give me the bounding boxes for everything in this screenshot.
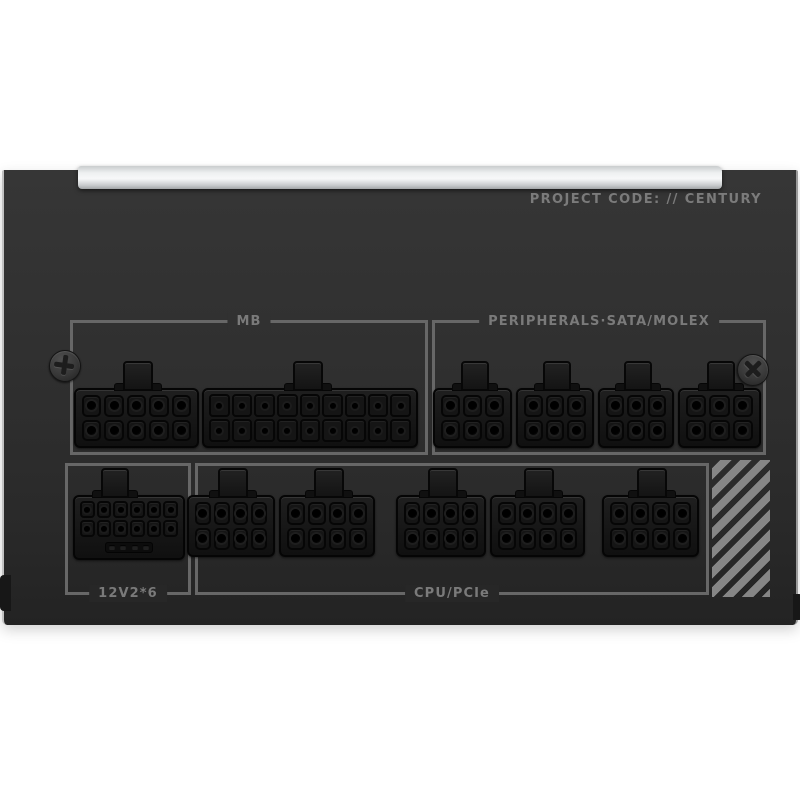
pin-socket bbox=[277, 394, 298, 417]
pin-grid bbox=[604, 497, 697, 555]
pin-hole bbox=[550, 401, 559, 410]
pin-hole bbox=[154, 426, 163, 435]
pin-hole bbox=[653, 401, 662, 410]
pin-socket bbox=[539, 502, 557, 525]
pin-socket bbox=[390, 394, 411, 417]
pin-hole bbox=[291, 509, 300, 518]
pin-hole bbox=[529, 426, 538, 435]
pin-socket bbox=[251, 502, 267, 525]
pin-hole bbox=[657, 509, 666, 518]
pin-hole bbox=[375, 428, 381, 434]
pin-grid bbox=[518, 390, 592, 446]
pin-socket bbox=[172, 420, 191, 442]
pin-socket bbox=[423, 528, 439, 551]
left-edge-clip bbox=[0, 575, 11, 611]
pin-hole bbox=[134, 526, 140, 532]
pin-socket bbox=[345, 394, 366, 417]
pin-socket bbox=[97, 520, 112, 537]
connector-latch-tab bbox=[218, 468, 248, 498]
connector-latch-tab bbox=[101, 468, 129, 498]
pin-hole bbox=[132, 426, 141, 435]
pin-hole bbox=[550, 426, 559, 435]
connector-latch-tab bbox=[293, 361, 323, 391]
pin-socket bbox=[686, 420, 706, 442]
connector-latch-tab bbox=[123, 361, 153, 391]
pin-hole bbox=[284, 428, 290, 434]
pin-socket bbox=[546, 395, 565, 417]
pin-hole bbox=[615, 509, 624, 518]
pin-socket bbox=[251, 528, 267, 551]
pin-hole bbox=[216, 428, 222, 434]
pin-socket bbox=[567, 420, 586, 442]
pin-socket bbox=[463, 395, 482, 417]
pin-hole bbox=[611, 426, 620, 435]
pin-socket bbox=[610, 502, 628, 525]
pin-socket bbox=[254, 394, 275, 417]
right-edge-clip bbox=[793, 594, 800, 620]
pin-socket bbox=[498, 502, 516, 525]
pin-socket bbox=[631, 502, 649, 525]
pin-hole bbox=[134, 507, 140, 513]
pin-socket bbox=[209, 394, 230, 417]
pin-hole bbox=[333, 534, 342, 543]
pin-socket bbox=[441, 420, 460, 442]
pin-hole bbox=[611, 401, 620, 410]
pin-hole bbox=[151, 526, 157, 532]
pin-socket bbox=[172, 395, 191, 417]
pin-hole bbox=[678, 509, 687, 518]
connector-layer bbox=[4, 170, 796, 625]
pin-socket bbox=[524, 420, 543, 442]
pin-grid bbox=[76, 390, 197, 446]
pin-socket bbox=[233, 502, 249, 525]
pin-hole bbox=[236, 534, 245, 543]
pin-socket bbox=[277, 419, 298, 442]
pin-socket bbox=[519, 528, 537, 551]
pin-socket bbox=[648, 420, 666, 442]
pin-socket bbox=[627, 420, 645, 442]
pin-hole bbox=[490, 426, 499, 435]
pin-grid bbox=[204, 390, 416, 446]
pin-hole bbox=[154, 401, 163, 410]
psu-modular-panel: PROJECT CODE: // CENTURY MB PERIPHERALS·… bbox=[2, 170, 798, 625]
pin-hole bbox=[84, 526, 90, 532]
pin-hole bbox=[446, 426, 455, 435]
pin-socket bbox=[214, 502, 230, 525]
pin-hole bbox=[330, 403, 336, 409]
pin-socket bbox=[214, 528, 230, 551]
pin-socket bbox=[485, 395, 504, 417]
pin-grid bbox=[75, 497, 183, 541]
pin-socket bbox=[546, 420, 565, 442]
pin-hole bbox=[239, 428, 245, 434]
pin-socket bbox=[567, 395, 586, 417]
pin-socket bbox=[733, 420, 753, 442]
pin-hole bbox=[255, 534, 264, 543]
pin-hole bbox=[330, 428, 336, 434]
pin-socket bbox=[287, 528, 305, 551]
connector-peri-2-6pin bbox=[516, 388, 594, 448]
pin-hole bbox=[151, 507, 157, 513]
pin-socket bbox=[80, 520, 95, 537]
pin-socket bbox=[147, 520, 162, 537]
pin-hole bbox=[490, 401, 499, 410]
pin-grid bbox=[680, 390, 759, 446]
pin-hole bbox=[523, 509, 532, 518]
pin-hole bbox=[239, 403, 245, 409]
connector-cpu-4-8pin bbox=[490, 495, 585, 557]
pin-hole bbox=[636, 534, 645, 543]
pin-socket bbox=[423, 502, 439, 525]
pin-hole bbox=[84, 507, 90, 513]
pin-hole bbox=[110, 401, 119, 410]
pin-socket bbox=[195, 528, 211, 551]
connector-cpu-2-8pin bbox=[279, 495, 375, 557]
pin-hole bbox=[312, 534, 321, 543]
connector-peri-4-6pin bbox=[678, 388, 761, 448]
pin-socket bbox=[104, 420, 123, 442]
pin-hole bbox=[564, 509, 573, 518]
pin-hole bbox=[217, 534, 226, 543]
connector-latch-tab bbox=[428, 468, 458, 498]
pin-socket bbox=[560, 502, 578, 525]
pin-hole bbox=[333, 509, 342, 518]
pin-hole bbox=[198, 534, 207, 543]
pin-grid bbox=[492, 497, 583, 555]
pin-socket bbox=[539, 528, 557, 551]
pin-socket bbox=[368, 419, 389, 442]
connector-v12-12pin bbox=[73, 495, 185, 560]
pin-hole bbox=[307, 428, 313, 434]
pin-socket bbox=[97, 501, 112, 518]
pin-socket bbox=[104, 395, 123, 417]
pin-hole bbox=[262, 403, 268, 409]
pin-socket bbox=[209, 419, 230, 442]
pin-socket bbox=[127, 420, 146, 442]
pin-socket bbox=[82, 395, 101, 417]
pin-socket bbox=[113, 501, 128, 518]
pin-socket bbox=[149, 395, 168, 417]
pin-hole bbox=[408, 534, 417, 543]
pin-hole bbox=[284, 403, 290, 409]
pin-hole bbox=[408, 509, 417, 518]
pin-hole bbox=[427, 534, 436, 543]
pin-socket bbox=[308, 528, 326, 551]
pin-socket bbox=[733, 395, 753, 417]
sense-pin bbox=[109, 545, 115, 550]
pin-hole bbox=[236, 509, 245, 518]
pin-hole bbox=[529, 401, 538, 410]
pin-hole bbox=[657, 534, 666, 543]
pin-hole bbox=[636, 509, 645, 518]
pin-hole bbox=[307, 403, 313, 409]
connector-latch-tab bbox=[461, 361, 489, 391]
pin-socket bbox=[443, 528, 459, 551]
pin-hole bbox=[110, 426, 119, 435]
pin-hole bbox=[446, 509, 455, 518]
pin-socket bbox=[462, 528, 478, 551]
connector-latch-tab bbox=[624, 361, 652, 391]
pin-hole bbox=[168, 526, 174, 532]
pin-socket bbox=[329, 502, 347, 525]
pin-socket bbox=[233, 528, 249, 551]
pin-socket bbox=[560, 528, 578, 551]
pin-socket bbox=[709, 420, 729, 442]
pin-hole bbox=[738, 426, 747, 435]
pin-socket bbox=[610, 528, 628, 551]
pin-socket bbox=[287, 502, 305, 525]
pin-socket bbox=[652, 502, 670, 525]
pin-hole bbox=[101, 526, 107, 532]
pin-hole bbox=[262, 428, 268, 434]
pin-hole bbox=[352, 403, 358, 409]
pin-hole bbox=[715, 401, 724, 410]
pin-socket bbox=[631, 528, 649, 551]
pin-hole bbox=[715, 426, 724, 435]
pin-hole bbox=[101, 507, 107, 513]
pin-socket bbox=[127, 395, 146, 417]
pin-socket bbox=[686, 395, 706, 417]
pin-socket bbox=[130, 520, 145, 537]
pin-hole bbox=[632, 401, 641, 410]
pin-socket bbox=[390, 419, 411, 442]
pin-grid bbox=[189, 497, 273, 555]
pin-hole bbox=[87, 401, 96, 410]
pin-hole bbox=[177, 401, 186, 410]
pin-hole bbox=[653, 426, 662, 435]
pin-hole bbox=[446, 534, 455, 543]
pin-hole bbox=[398, 403, 404, 409]
pin-hole bbox=[291, 534, 300, 543]
sense-pin bbox=[120, 545, 126, 550]
pin-hole bbox=[543, 534, 552, 543]
pin-hole bbox=[446, 401, 455, 410]
pin-socket bbox=[300, 419, 321, 442]
pin-hole bbox=[352, 428, 358, 434]
pin-hole bbox=[118, 526, 124, 532]
connector-latch-tab bbox=[524, 468, 554, 498]
pin-socket bbox=[300, 394, 321, 417]
pin-socket bbox=[195, 502, 211, 525]
pin-hole bbox=[198, 509, 207, 518]
connector-latch-tab bbox=[637, 468, 667, 498]
pin-hole bbox=[375, 403, 381, 409]
pin-socket bbox=[606, 395, 624, 417]
pin-socket bbox=[519, 502, 537, 525]
pin-socket bbox=[349, 528, 367, 551]
pin-hole bbox=[692, 426, 701, 435]
pin-hole bbox=[354, 509, 363, 518]
connector-peri-1-6pin bbox=[433, 388, 512, 448]
pin-socket bbox=[82, 420, 101, 442]
pin-hole bbox=[502, 534, 511, 543]
pin-socket bbox=[524, 395, 543, 417]
pin-hole bbox=[312, 509, 321, 518]
pin-socket bbox=[441, 395, 460, 417]
connector-mb-b-18pin bbox=[202, 388, 418, 448]
pin-socket bbox=[113, 520, 128, 537]
pin-socket bbox=[130, 501, 145, 518]
pin-socket bbox=[80, 501, 95, 518]
pin-socket bbox=[627, 395, 645, 417]
pin-socket bbox=[652, 528, 670, 551]
sense-pin-slot bbox=[105, 542, 154, 553]
pin-socket bbox=[485, 420, 504, 442]
connector-cpu-3-8pin bbox=[396, 495, 486, 557]
pin-hole bbox=[564, 534, 573, 543]
pin-hole bbox=[177, 426, 186, 435]
pin-hole bbox=[168, 507, 174, 513]
pin-socket bbox=[648, 395, 666, 417]
connector-mb-a-10pin bbox=[74, 388, 199, 448]
connector-latch-tab bbox=[707, 361, 735, 391]
pin-socket bbox=[308, 502, 326, 525]
sense-pin bbox=[132, 545, 138, 550]
pin-hole bbox=[87, 426, 96, 435]
connector-peri-3-6pin bbox=[598, 388, 674, 448]
pin-hole bbox=[465, 534, 474, 543]
pin-socket bbox=[163, 501, 178, 518]
pin-hole bbox=[217, 509, 226, 518]
pin-socket bbox=[606, 420, 624, 442]
pin-socket bbox=[709, 395, 729, 417]
pin-hole bbox=[398, 428, 404, 434]
pin-hole bbox=[468, 426, 477, 435]
pin-hole bbox=[118, 507, 124, 513]
pin-grid bbox=[435, 390, 510, 446]
product-photo: PROJECT CODE: // CENTURY MB PERIPHERALS·… bbox=[0, 0, 800, 800]
pin-hole bbox=[738, 401, 747, 410]
pin-socket bbox=[498, 528, 516, 551]
connector-cpu-5-8pin bbox=[602, 495, 699, 557]
pin-hole bbox=[523, 534, 532, 543]
pin-hole bbox=[216, 403, 222, 409]
pin-hole bbox=[468, 401, 477, 410]
pin-hole bbox=[132, 401, 141, 410]
pin-hole bbox=[427, 509, 436, 518]
pin-socket bbox=[443, 502, 459, 525]
pin-socket bbox=[163, 520, 178, 537]
pin-hole bbox=[572, 426, 581, 435]
pin-socket bbox=[404, 528, 420, 551]
pin-grid bbox=[281, 497, 373, 555]
pin-socket bbox=[232, 419, 253, 442]
pin-socket bbox=[322, 394, 343, 417]
pin-socket bbox=[673, 528, 691, 551]
pin-socket bbox=[232, 394, 253, 417]
pin-socket bbox=[149, 420, 168, 442]
sense-pin bbox=[143, 545, 149, 550]
pin-socket bbox=[147, 501, 162, 518]
pin-hole bbox=[615, 534, 624, 543]
pin-socket bbox=[404, 502, 420, 525]
pin-socket bbox=[462, 502, 478, 525]
pin-hole bbox=[255, 509, 264, 518]
pin-socket bbox=[673, 502, 691, 525]
pin-socket bbox=[368, 394, 389, 417]
pin-hole bbox=[692, 401, 701, 410]
pin-socket bbox=[329, 528, 347, 551]
connector-cpu-1-8pin bbox=[187, 495, 275, 557]
pin-socket bbox=[322, 419, 343, 442]
connector-latch-tab bbox=[314, 468, 344, 498]
pin-hole bbox=[502, 509, 511, 518]
pin-hole bbox=[678, 534, 687, 543]
pin-socket bbox=[349, 502, 367, 525]
pin-hole bbox=[632, 426, 641, 435]
pin-hole bbox=[354, 534, 363, 543]
pin-hole bbox=[543, 509, 552, 518]
pin-grid bbox=[600, 390, 672, 446]
pin-socket bbox=[463, 420, 482, 442]
pin-hole bbox=[465, 509, 474, 518]
pin-hole bbox=[572, 401, 581, 410]
pin-grid bbox=[398, 497, 484, 555]
pin-socket bbox=[254, 419, 275, 442]
pin-socket bbox=[345, 419, 366, 442]
connector-latch-tab bbox=[543, 361, 571, 391]
